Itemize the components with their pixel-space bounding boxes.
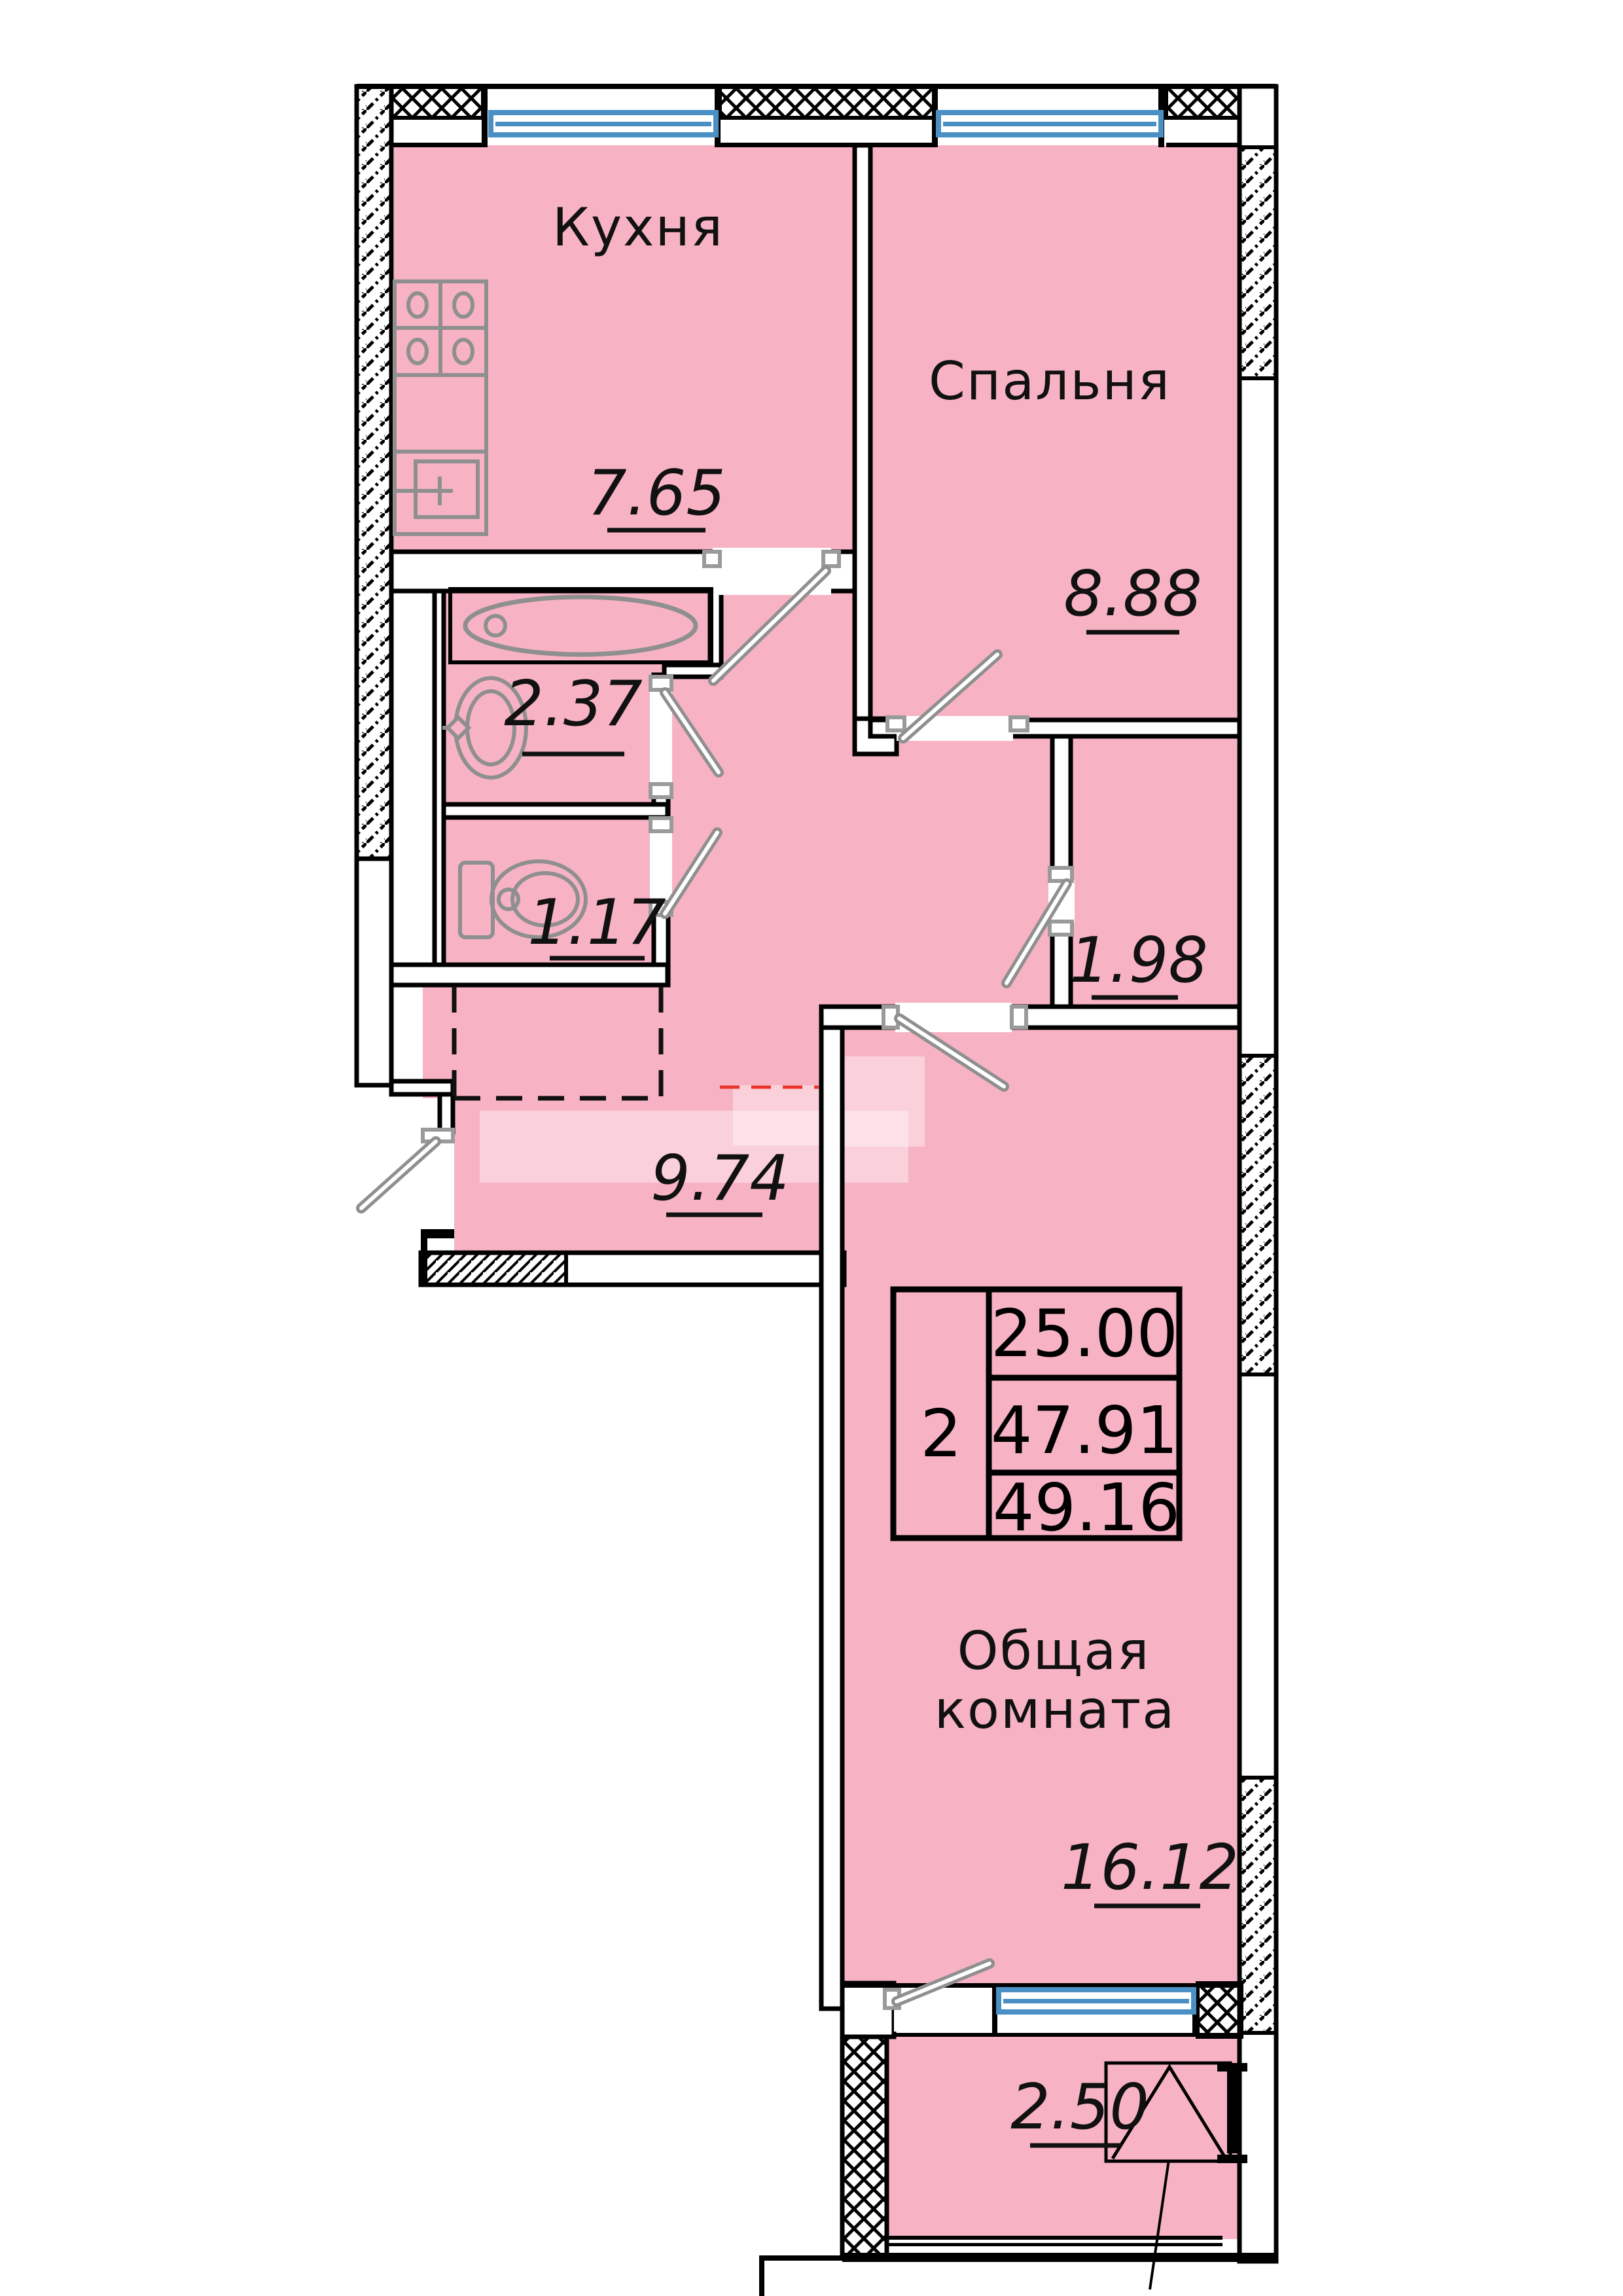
balcony-window (999, 1990, 1194, 2012)
living-area: 16.12 (1061, 1832, 1239, 1904)
hall-south-wall-hatched (421, 1253, 566, 1285)
right-pier-2 (1240, 1056, 1276, 1374)
total-area: 49.16 (993, 1469, 1180, 1546)
living-south-pier (1198, 1983, 1241, 2037)
bedroom-area: 8.88 (1063, 558, 1202, 630)
kitchen-window (491, 113, 716, 135)
balcony-outer-line (842, 2253, 1277, 2262)
cabin-west-wall (435, 591, 444, 965)
bath-toilet-wall (435, 804, 668, 817)
kitchen-bedroom-wall (855, 145, 870, 723)
living-left-wall (821, 1007, 842, 2009)
kitchen-area: 7.65 (587, 457, 726, 529)
hallway-area: 9.74 (651, 1143, 789, 1215)
rooms-count: 2 (920, 1395, 962, 1472)
toilet-south-wall (391, 965, 668, 985)
left-wall-lower (357, 859, 391, 1085)
bathroom-area: 2.37 (504, 668, 643, 740)
reduced-area-total: 47.91 (991, 1392, 1178, 1469)
living-label-line1: Общая (957, 1621, 1150, 1681)
toilet-area: 1.17 (527, 887, 666, 959)
balcony-rail-line1 (887, 2236, 1222, 2240)
top-pier-left (391, 86, 483, 118)
living-area-total: 25.00 (991, 1295, 1178, 1372)
right-pier-3 (1240, 1778, 1276, 2033)
balcony-area: 2.50 (1010, 2072, 1149, 2144)
apartment-footprint (394, 145, 1238, 2239)
balcony-rail-line2 (887, 2243, 1222, 2246)
closet-area: 1.98 (1069, 925, 1208, 997)
entry-nook-wall-v (440, 1094, 453, 1132)
balcony-left-wall (842, 2009, 887, 2257)
living-label-line2: комната (935, 1679, 1176, 1740)
kitchen-label: Кухня (552, 197, 724, 258)
vent-shaft (394, 592, 435, 964)
floor-plan-canvas: Кухня Спальня Общая комната 7.65 8.88 2.… (0, 0, 1623, 2296)
left-wall-hatched (357, 86, 391, 859)
bedroom-window (938, 113, 1161, 135)
top-pier-mid (720, 86, 935, 118)
bedroom-label: Спальня (929, 351, 1171, 412)
right-pier-1 (1240, 147, 1276, 378)
